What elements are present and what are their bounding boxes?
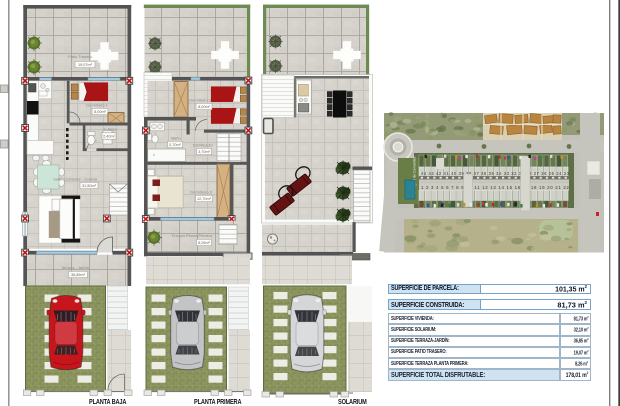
svg-text:19,07m²: 19,07m² (78, 63, 93, 67)
svg-text:Dormitorio 2: Dormitorio 2 (189, 98, 212, 103)
svg-text:8,26m²: 8,26m² (198, 241, 211, 245)
svg-text:12,70m²: 12,70m² (197, 197, 212, 201)
svg-text:Distribuidor: Distribuidor (193, 143, 214, 148)
svg-text:Patio Trasero: Patio Trasero (68, 54, 93, 59)
svg-text:Dormitorio 3: Dormitorio 3 (190, 190, 213, 195)
svg-text:31,50m²: 31,50m² (82, 184, 97, 188)
svg-text:8,00m²: 8,00m² (198, 105, 211, 109)
svg-text:2. Aseo: 2. Aseo (103, 127, 117, 132)
svg-text:Terraza - Jardín: Terraza - Jardín (61, 265, 89, 270)
svg-text:1 2 3 4 5 6 7 8 9 10 11 12 13: 1 2 3 4 5 6 7 8 9 10 11 12 13 14 15 16 1… (421, 185, 570, 190)
svg-text:2,70m²: 2,70m² (169, 143, 182, 147)
svg-text:Dormitorio 1: Dormitorio 1 (86, 103, 109, 108)
svg-text:Salón Comedor - Cocina: Salón Comedor - Cocina (53, 177, 98, 182)
svg-text:2,40m²: 2,40m² (103, 134, 116, 138)
svg-text:8,00m²: 8,00m² (94, 110, 107, 114)
svg-text:Terraza Planta Primera: Terraza Planta Primera (172, 233, 214, 238)
svg-text:Baño: Baño (171, 136, 181, 141)
svg-text:3,70m²: 3,70m² (198, 150, 211, 154)
svg-text:36,85m²: 36,85m² (71, 273, 86, 277)
svg-text:44 43 42 41 40 39 38 37 36 35: 44 43 42 41 40 39 38 37 36 35 34 33 32 3… (421, 171, 570, 176)
